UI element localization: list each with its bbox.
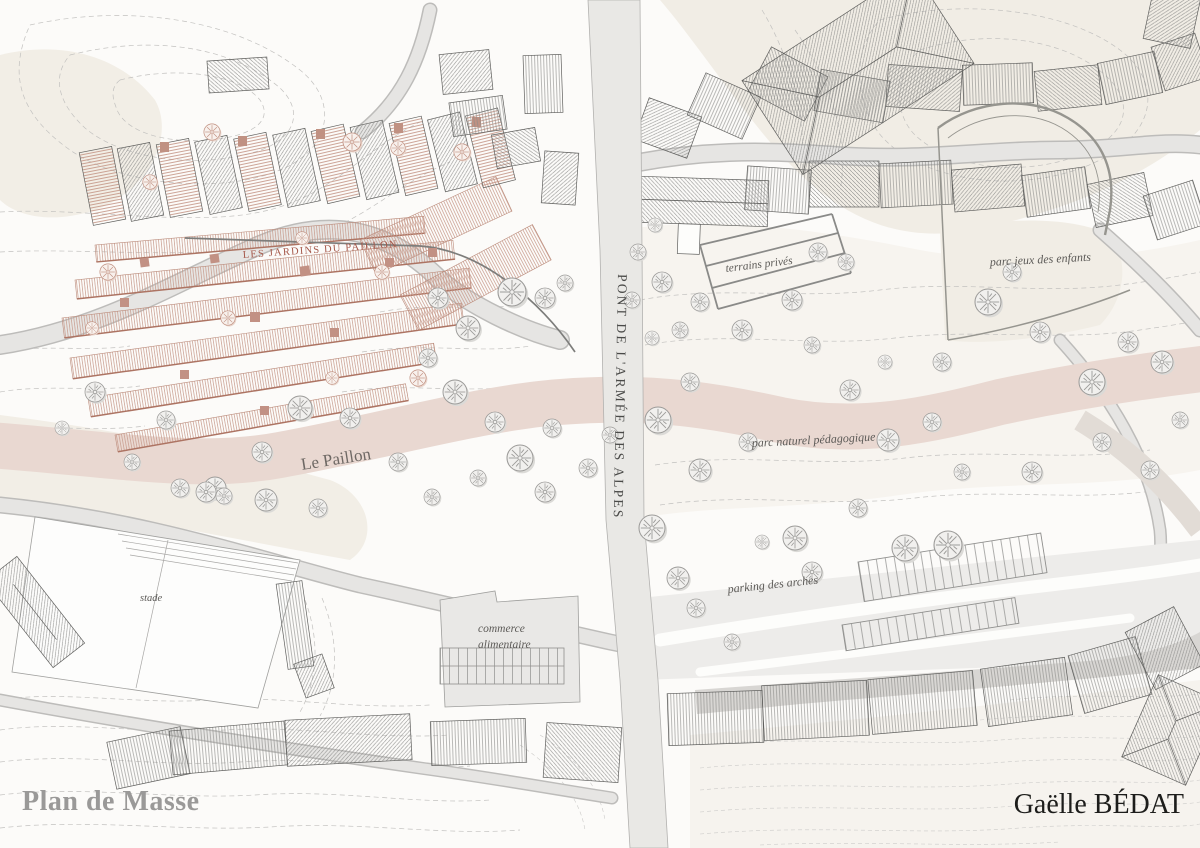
stadium-label: stade — [140, 593, 163, 604]
site-plan-map: PONT DE L'ARMÉE DES ALPES Le Paillon LES… — [0, 0, 1200, 848]
plan-title: Plan de Masse — [22, 786, 200, 818]
shop-label-line1: commerce — [478, 623, 525, 635]
site-plan-canvas: PONT DE L'ARMÉE DES ALPES Le Paillon LES… — [0, 0, 1200, 848]
shop-label-line2: alimentaire — [478, 639, 531, 651]
author-name: Gaëlle BÉDAT — [1014, 789, 1184, 821]
